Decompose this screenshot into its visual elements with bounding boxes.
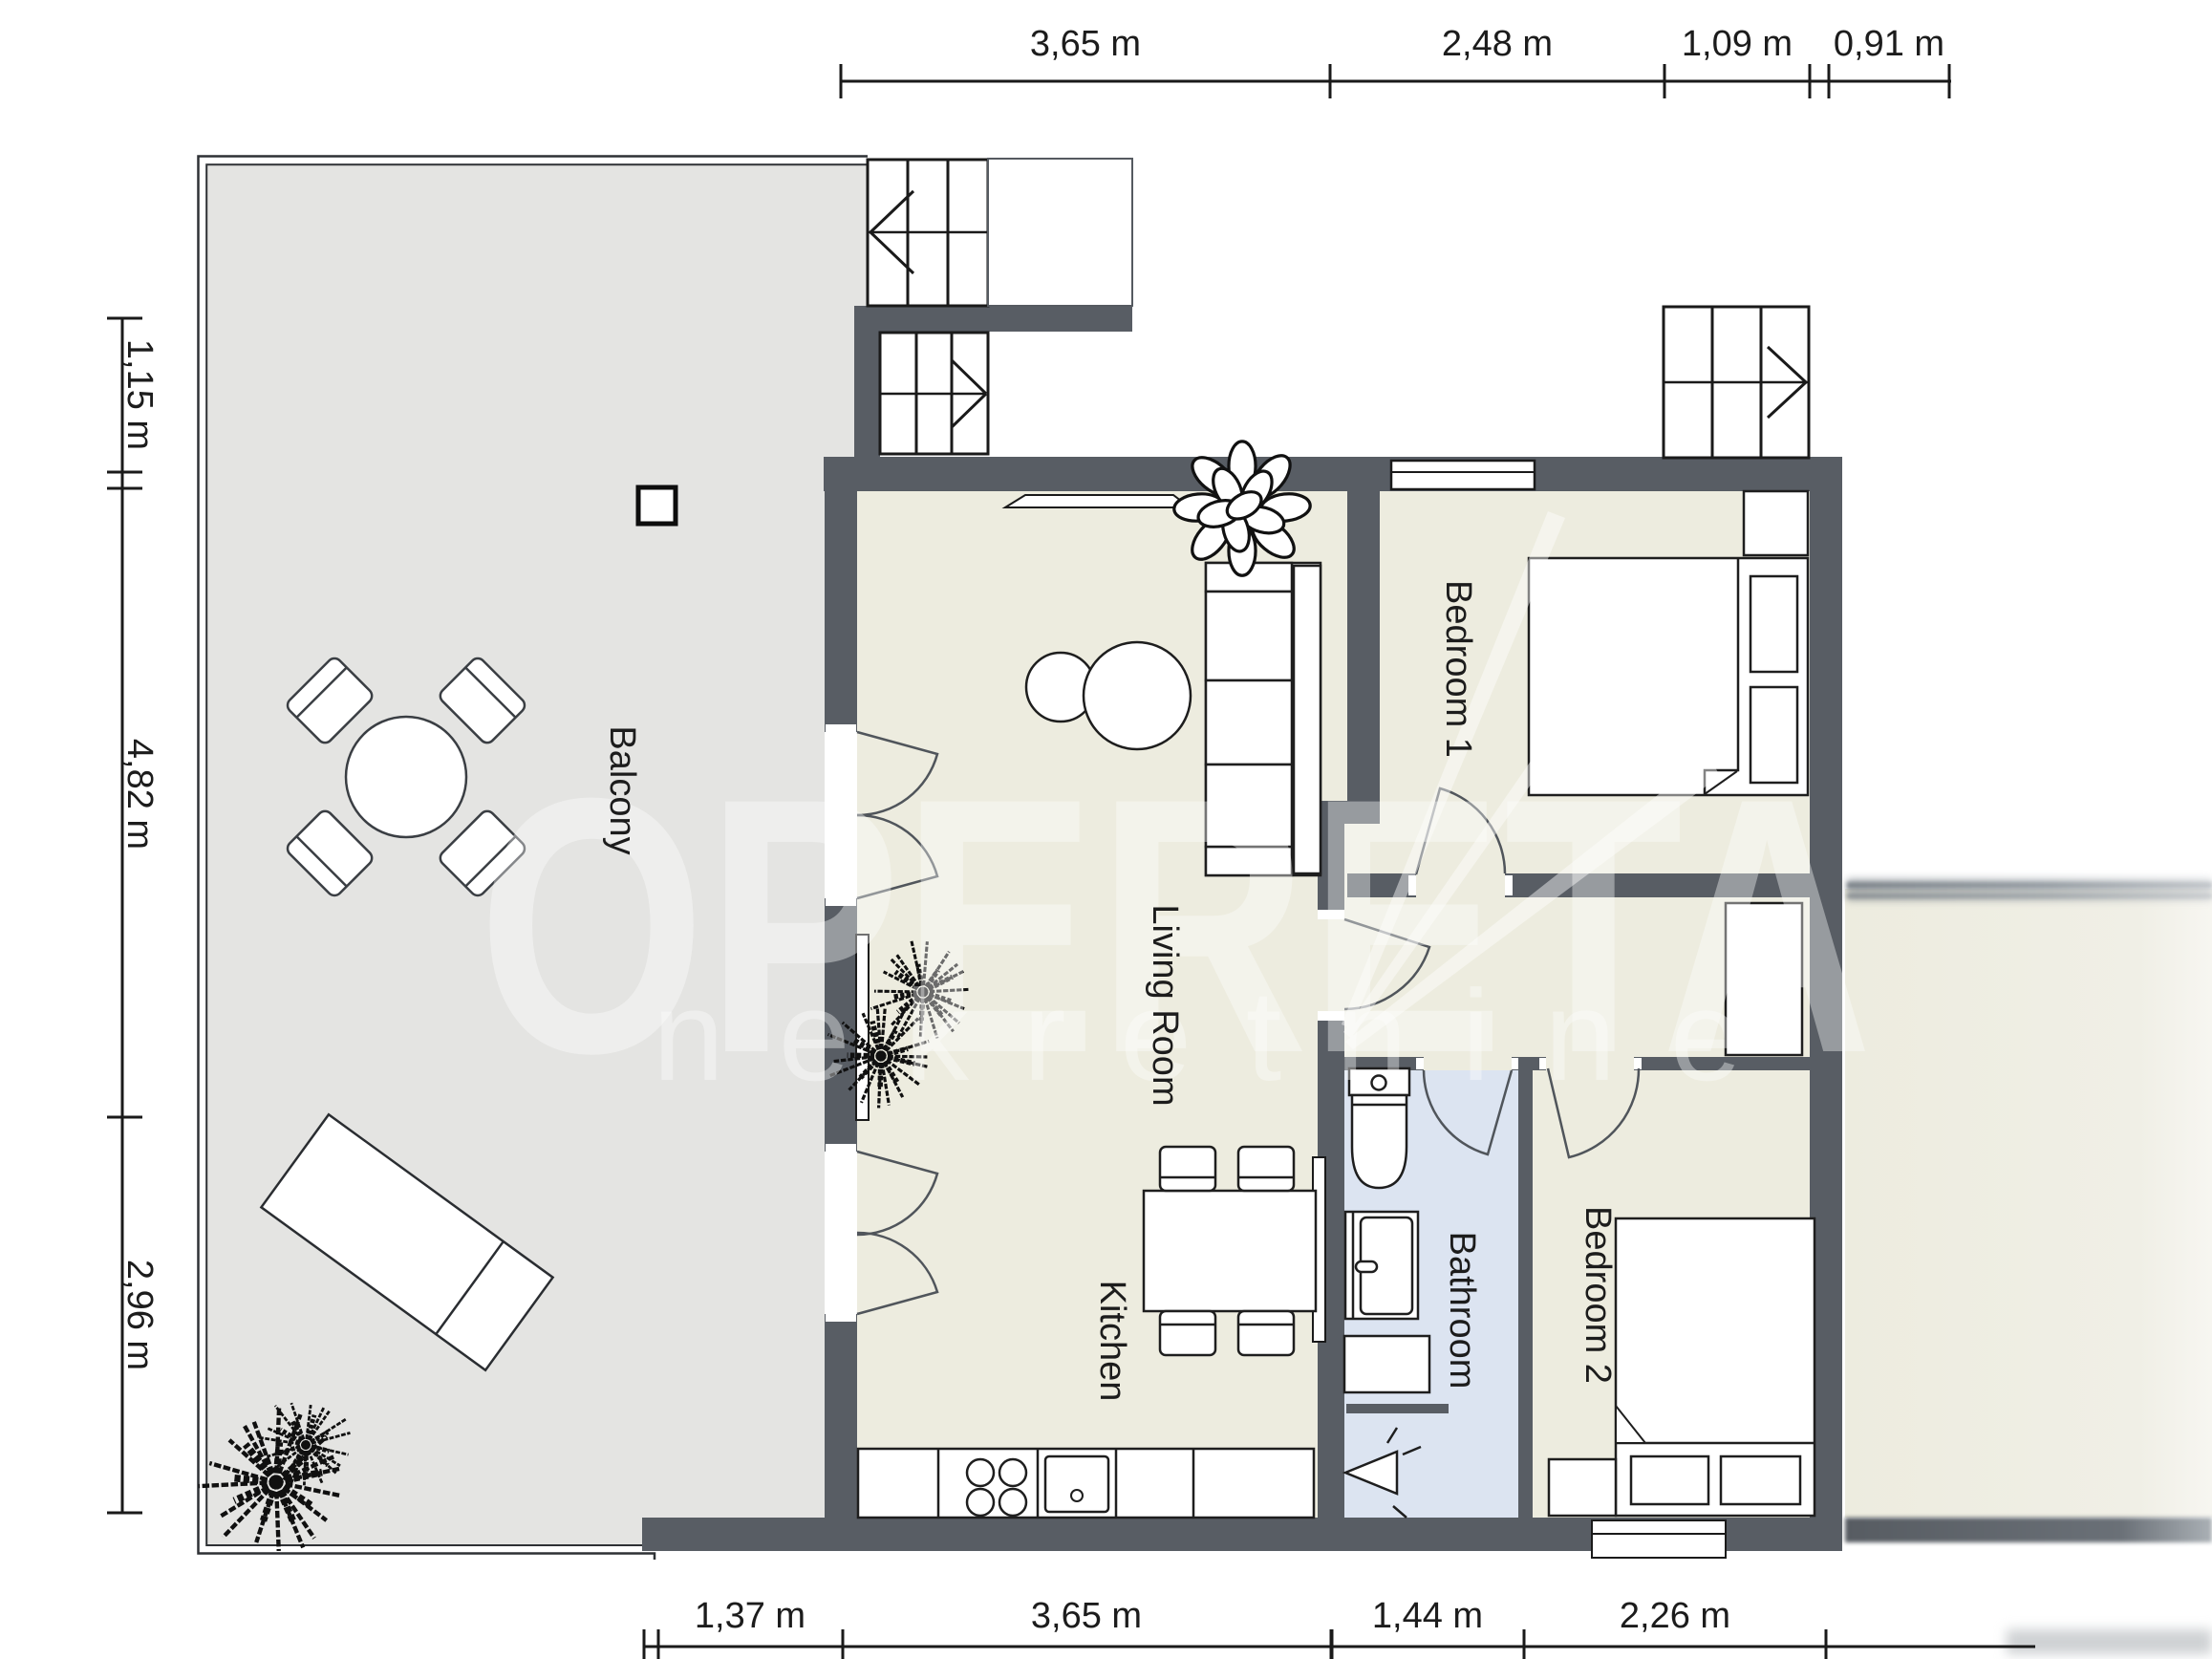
svg-text:1,44 m: 1,44 m	[1372, 1596, 1483, 1636]
svg-text:Bedroom 1: Bedroom 1	[1438, 580, 1478, 758]
svg-text:1,09 m: 1,09 m	[1682, 24, 1793, 64]
svg-text:2,48 m: 2,48 m	[1442, 24, 1553, 64]
svg-text:3,65 m: 3,65 m	[1030, 24, 1141, 64]
svg-text:Bedroom 2: Bedroom 2	[1578, 1206, 1618, 1384]
svg-text:Kitchen: Kitchen	[1092, 1281, 1132, 1402]
svg-text:Living Room: Living Room	[1145, 904, 1185, 1106]
svg-text:1,37 m: 1,37 m	[695, 1596, 805, 1636]
svg-text:Bathroom: Bathroom	[1442, 1232, 1482, 1390]
svg-text:4,82 m: 4,82 m	[119, 739, 160, 850]
svg-text:2,96 m: 2,96 m	[119, 1260, 160, 1370]
svg-text:2,26 m: 2,26 m	[1620, 1596, 1730, 1636]
svg-text:1,15 m: 1,15 m	[119, 339, 160, 450]
svg-text:0,91 m: 0,91 m	[1834, 24, 1944, 64]
svg-text:3,65 m: 3,65 m	[1031, 1596, 1142, 1636]
svg-text:Balcony: Balcony	[602, 725, 642, 854]
